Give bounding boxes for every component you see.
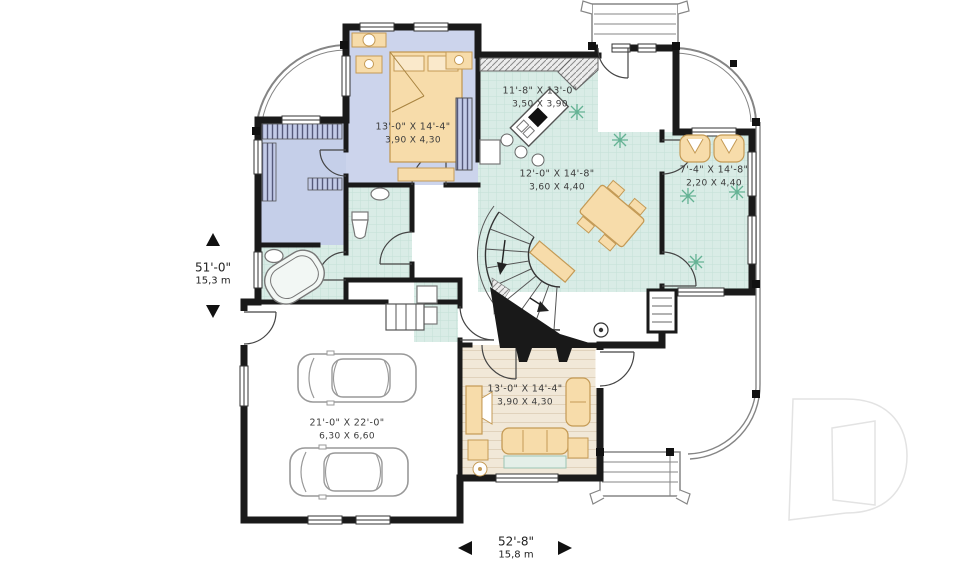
overall-height-dimension: 51'-0" 15,3 m: [195, 260, 231, 288]
chase: [456, 98, 472, 170]
width-imperial: 52'-8": [498, 534, 534, 549]
garage-imperial: 21'-0" X 22'-0": [310, 417, 385, 431]
kitchen-metric: 3,50 X 3,90: [503, 98, 578, 111]
washer: [417, 286, 437, 303]
bath-sink: [265, 250, 283, 263]
sofa: [502, 428, 568, 454]
stool: [532, 154, 544, 166]
width-metric: 15,8 m: [498, 549, 534, 562]
drummond-d-logo-watermark: [789, 399, 907, 520]
garage-dimensions-label: 21'-0" X 22'-0" 6,30 X 6,60: [310, 417, 385, 444]
bedroom-dimensions-label: 13'-0" X 14'-4" 3,90 X 4,30: [376, 121, 451, 148]
kitchen-imperial: 11'-8" X 13'-0": [503, 85, 578, 99]
living-metric: 3,90 X 4,30: [488, 396, 563, 409]
hall-closet: [648, 290, 676, 332]
side-table: [568, 438, 588, 458]
floor-plan-canvas: 13'-0" X 14'-4" 3,90 X 4,30 11'-8" X 13'…: [0, 0, 960, 569]
top-deck-stairs: [581, 1, 689, 46]
sunroom-imperial: 7'-4" X 14'-8": [680, 164, 749, 178]
tv-cabinet: [466, 386, 482, 434]
floor-plan-drawing: [0, 0, 960, 569]
overall-width-dimension: 52'-8" 15,8 m: [498, 534, 534, 562]
stair-base-wall: [490, 287, 606, 348]
arrow-left-icon: [458, 541, 472, 555]
sunroom-metric: 2,20 X 4,40: [680, 177, 749, 190]
stool: [515, 146, 527, 158]
dining-metric: 3,60 X 4,40: [520, 181, 595, 194]
fridge: [480, 140, 500, 164]
garage-metric: 6,30 X 6,60: [310, 430, 385, 443]
kitchen-dimensions-label: 11'-8" X 13'-0" 3,50 X 3,90: [503, 85, 578, 112]
stool: [501, 134, 513, 146]
bedroom-imperial: 13'-0" X 14'-4": [376, 121, 451, 135]
side-table: [468, 440, 488, 460]
car: [298, 351, 416, 405]
car: [290, 445, 408, 499]
toilet-tank: [352, 212, 368, 220]
height-imperial: 51'-0": [195, 260, 231, 275]
rug: [504, 456, 566, 468]
arrow-right-icon: [558, 541, 572, 555]
living-dimensions-label: 13'-0" X 14'-4" 3,90 X 4,30: [488, 383, 563, 410]
dresser-mirror: [363, 34, 375, 46]
lamp: [365, 60, 374, 69]
powder-sink: [371, 188, 389, 200]
bottomright-exterior-stairs: [590, 452, 690, 504]
garage-contents: [290, 304, 424, 499]
dining-dimensions-label: 12'-0" X 14'-8" 3,60 X 4,40: [520, 168, 595, 195]
bedroom-metric: 3,90 X 4,30: [376, 134, 451, 147]
lamp: [455, 56, 464, 65]
toilet-bowl: [352, 220, 368, 239]
dining-imperial: 12'-0" X 14'-8": [520, 168, 595, 182]
garage-stairs: [386, 304, 424, 330]
topright-veranda-railing: [676, 48, 756, 122]
counter: [480, 58, 572, 71]
arrow-down-icon: [206, 305, 220, 318]
living-imperial: 13'-0" X 14'-4": [488, 383, 563, 397]
sunroom-dimensions-label: 7'-4" X 14'-8" 2,20 X 4,40: [680, 164, 749, 191]
bench: [398, 168, 454, 181]
height-metric: 15,3 m: [195, 275, 231, 288]
arrow-up-icon: [206, 233, 220, 246]
